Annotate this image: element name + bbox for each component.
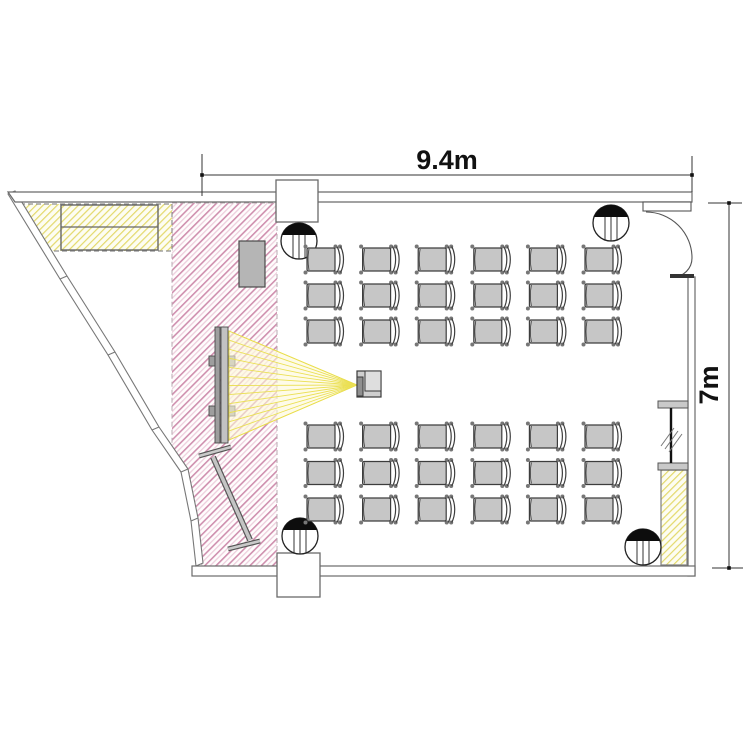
chair-icon [526,245,566,275]
chair-icon [526,495,566,525]
swing-door-icon [643,202,694,278]
chair-icon [304,317,344,347]
lectern-icon [239,241,265,287]
chair-icon [526,458,566,488]
dimension-width-label: 9.4m [416,145,478,175]
floor-plan-canvas: 9.4m 7m [0,0,750,750]
chair-icon [359,495,399,525]
chair-icon [359,281,399,311]
chair-icon [582,458,622,488]
storage-cabinet-icon [661,470,687,565]
chair-icon [359,317,399,347]
chair-icon [304,422,344,452]
chair-icon [415,281,455,311]
chair-icon [304,245,344,275]
right-wall [688,277,695,576]
chair-icon [415,458,455,488]
chair-icon [470,422,510,452]
chair-icon [304,458,344,488]
chair-icon [359,422,399,452]
top-wall [8,192,692,202]
projection-cone-icon [229,331,357,440]
chair-icon [415,495,455,525]
ceiling-speaker-icon [593,205,629,241]
chair-icon [582,495,622,525]
chair-icon [470,458,510,488]
chair-icon [582,317,622,347]
column-top [276,180,318,222]
chair-icon [470,281,510,311]
chair-icon [415,317,455,347]
column-bottom [277,553,320,597]
chair-icon [470,245,510,275]
chair-icon [359,245,399,275]
chair-icon [415,422,455,452]
ceiling-speaker-icon [282,518,318,554]
chair-icon [415,245,455,275]
chair-icon [582,245,622,275]
folding-partition-icon [658,401,688,470]
floor-plan-drawing: 9.4m 7m [0,0,750,750]
chair-icon [304,495,344,525]
chair-icon [304,281,344,311]
chair-icon [470,317,510,347]
chair-icon [526,317,566,347]
ceiling-projector-icon [357,371,381,397]
ceiling-speaker-icon [625,529,661,565]
chair-icon [470,495,510,525]
chair-icon [359,458,399,488]
chair-icon [582,422,622,452]
bottom-wall [192,566,695,576]
chair-icon [526,281,566,311]
dimension-height-label: 7m [694,365,724,404]
chair-icon [582,281,622,311]
chair-icon [526,422,566,452]
